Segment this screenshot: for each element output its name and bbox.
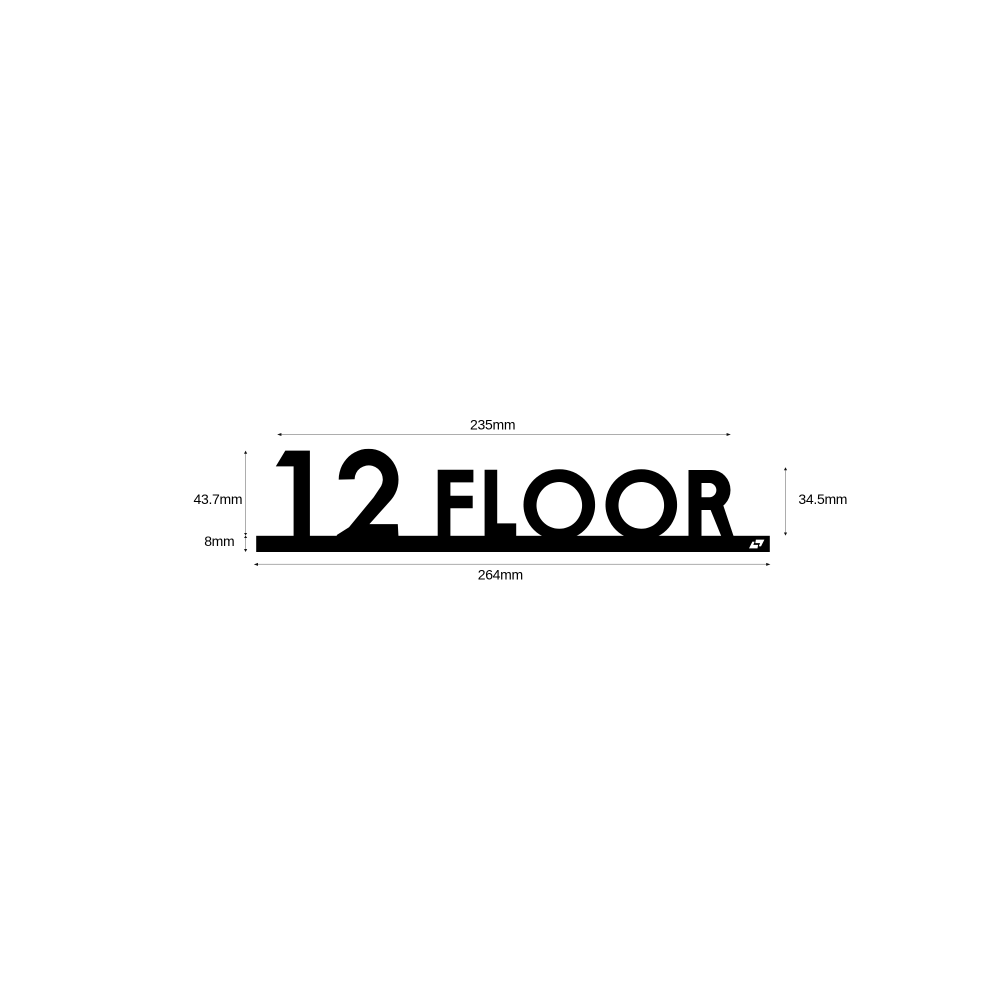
svg-text:43.7mm: 43.7mm	[194, 491, 243, 507]
svg-text:8mm: 8mm	[204, 533, 234, 549]
svg-text:34.5mm: 34.5mm	[798, 491, 847, 507]
svg-text:235mm: 235mm	[470, 417, 515, 433]
svg-text:264mm: 264mm	[478, 566, 523, 582]
